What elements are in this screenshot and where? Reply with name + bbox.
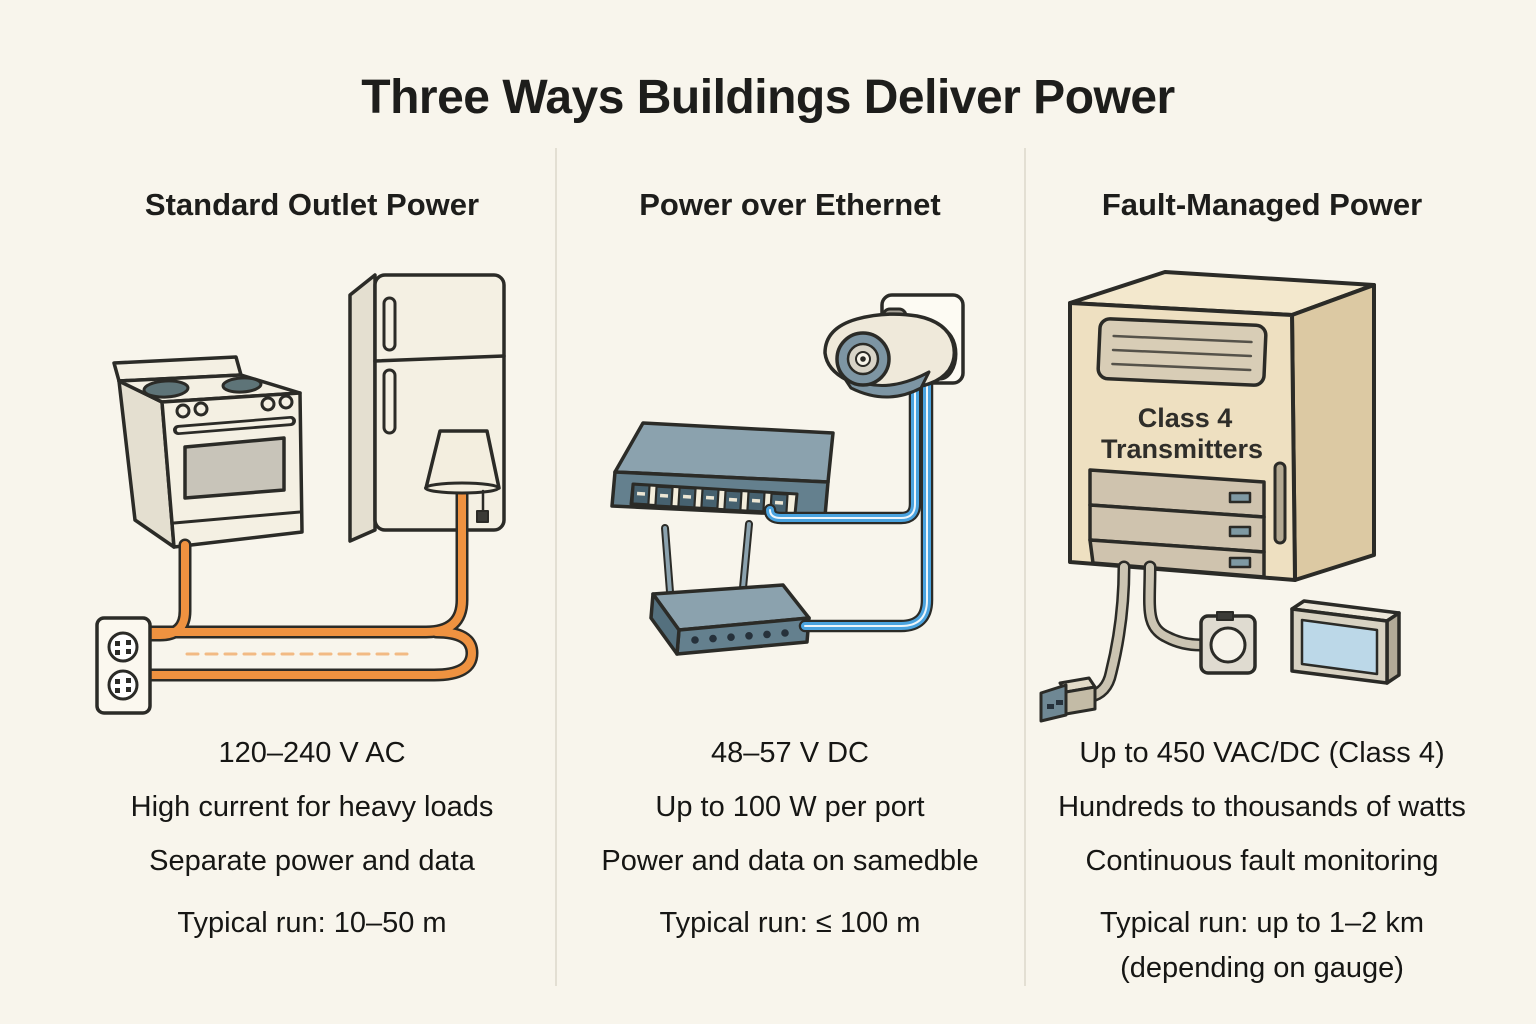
capability-spec: High current for heavy loads [62,791,562,824]
ip-camera-illustration [825,295,963,397]
fault-managed-illustration: Class 4 Transmitters [1027,255,1497,725]
power-plug-illustration [1041,678,1095,721]
poe-illustration [557,258,1023,718]
wall-outlet-illustration [97,618,150,713]
run-spec: Typical run: 10–50 m [62,907,562,940]
page-title: Three Ways Buildings Deliver Power [0,70,1536,125]
refrigerator-illustration [350,275,504,541]
display-panel-illustration [1292,601,1399,683]
cabinet-label-line2: Transmitters [1101,434,1263,464]
infographic-canvas: Three Ways Buildings Deliver Power Stand… [0,0,1536,1024]
column-header: Standard Outlet Power [62,187,562,223]
cabinet-label-line1: Class 4 [1138,403,1233,433]
voltage-spec: 48–57 V DC [557,737,1023,770]
data-spec: Power and data on samedble [557,845,1023,878]
standard-outlet-illustration [62,255,562,725]
column-divider-right [1024,148,1026,986]
column-header: Fault-Managed Power [1027,187,1497,223]
stove-illustration [114,357,302,547]
column-header: Power over Ethernet [557,187,1023,223]
voltage-spec: Up to 450 VAC/DC (Class 4) [1027,737,1497,770]
run-spec: Typical run: up to 1–2 km [1027,907,1497,940]
thermostat-illustration [1201,612,1255,673]
run-spec: Typical run: ≤ 100 m [557,907,1023,940]
fmp-cables [1079,567,1201,698]
network-switch-illustration [612,423,833,516]
data-spec: Separate power and data [62,845,562,878]
capability-spec: Hundreds to thousands of watts [1027,791,1497,824]
capability-spec: Up to 100 W per port [557,791,1023,824]
voltage-spec: 120–240 V AC [62,737,562,770]
run-note: (depending on gauge) [1027,952,1497,985]
data-spec: Continuous fault monitoring [1027,845,1497,878]
wifi-router-illustration [651,524,809,654]
class4-cabinet-illustration: Class 4 Transmitters [1070,272,1374,580]
